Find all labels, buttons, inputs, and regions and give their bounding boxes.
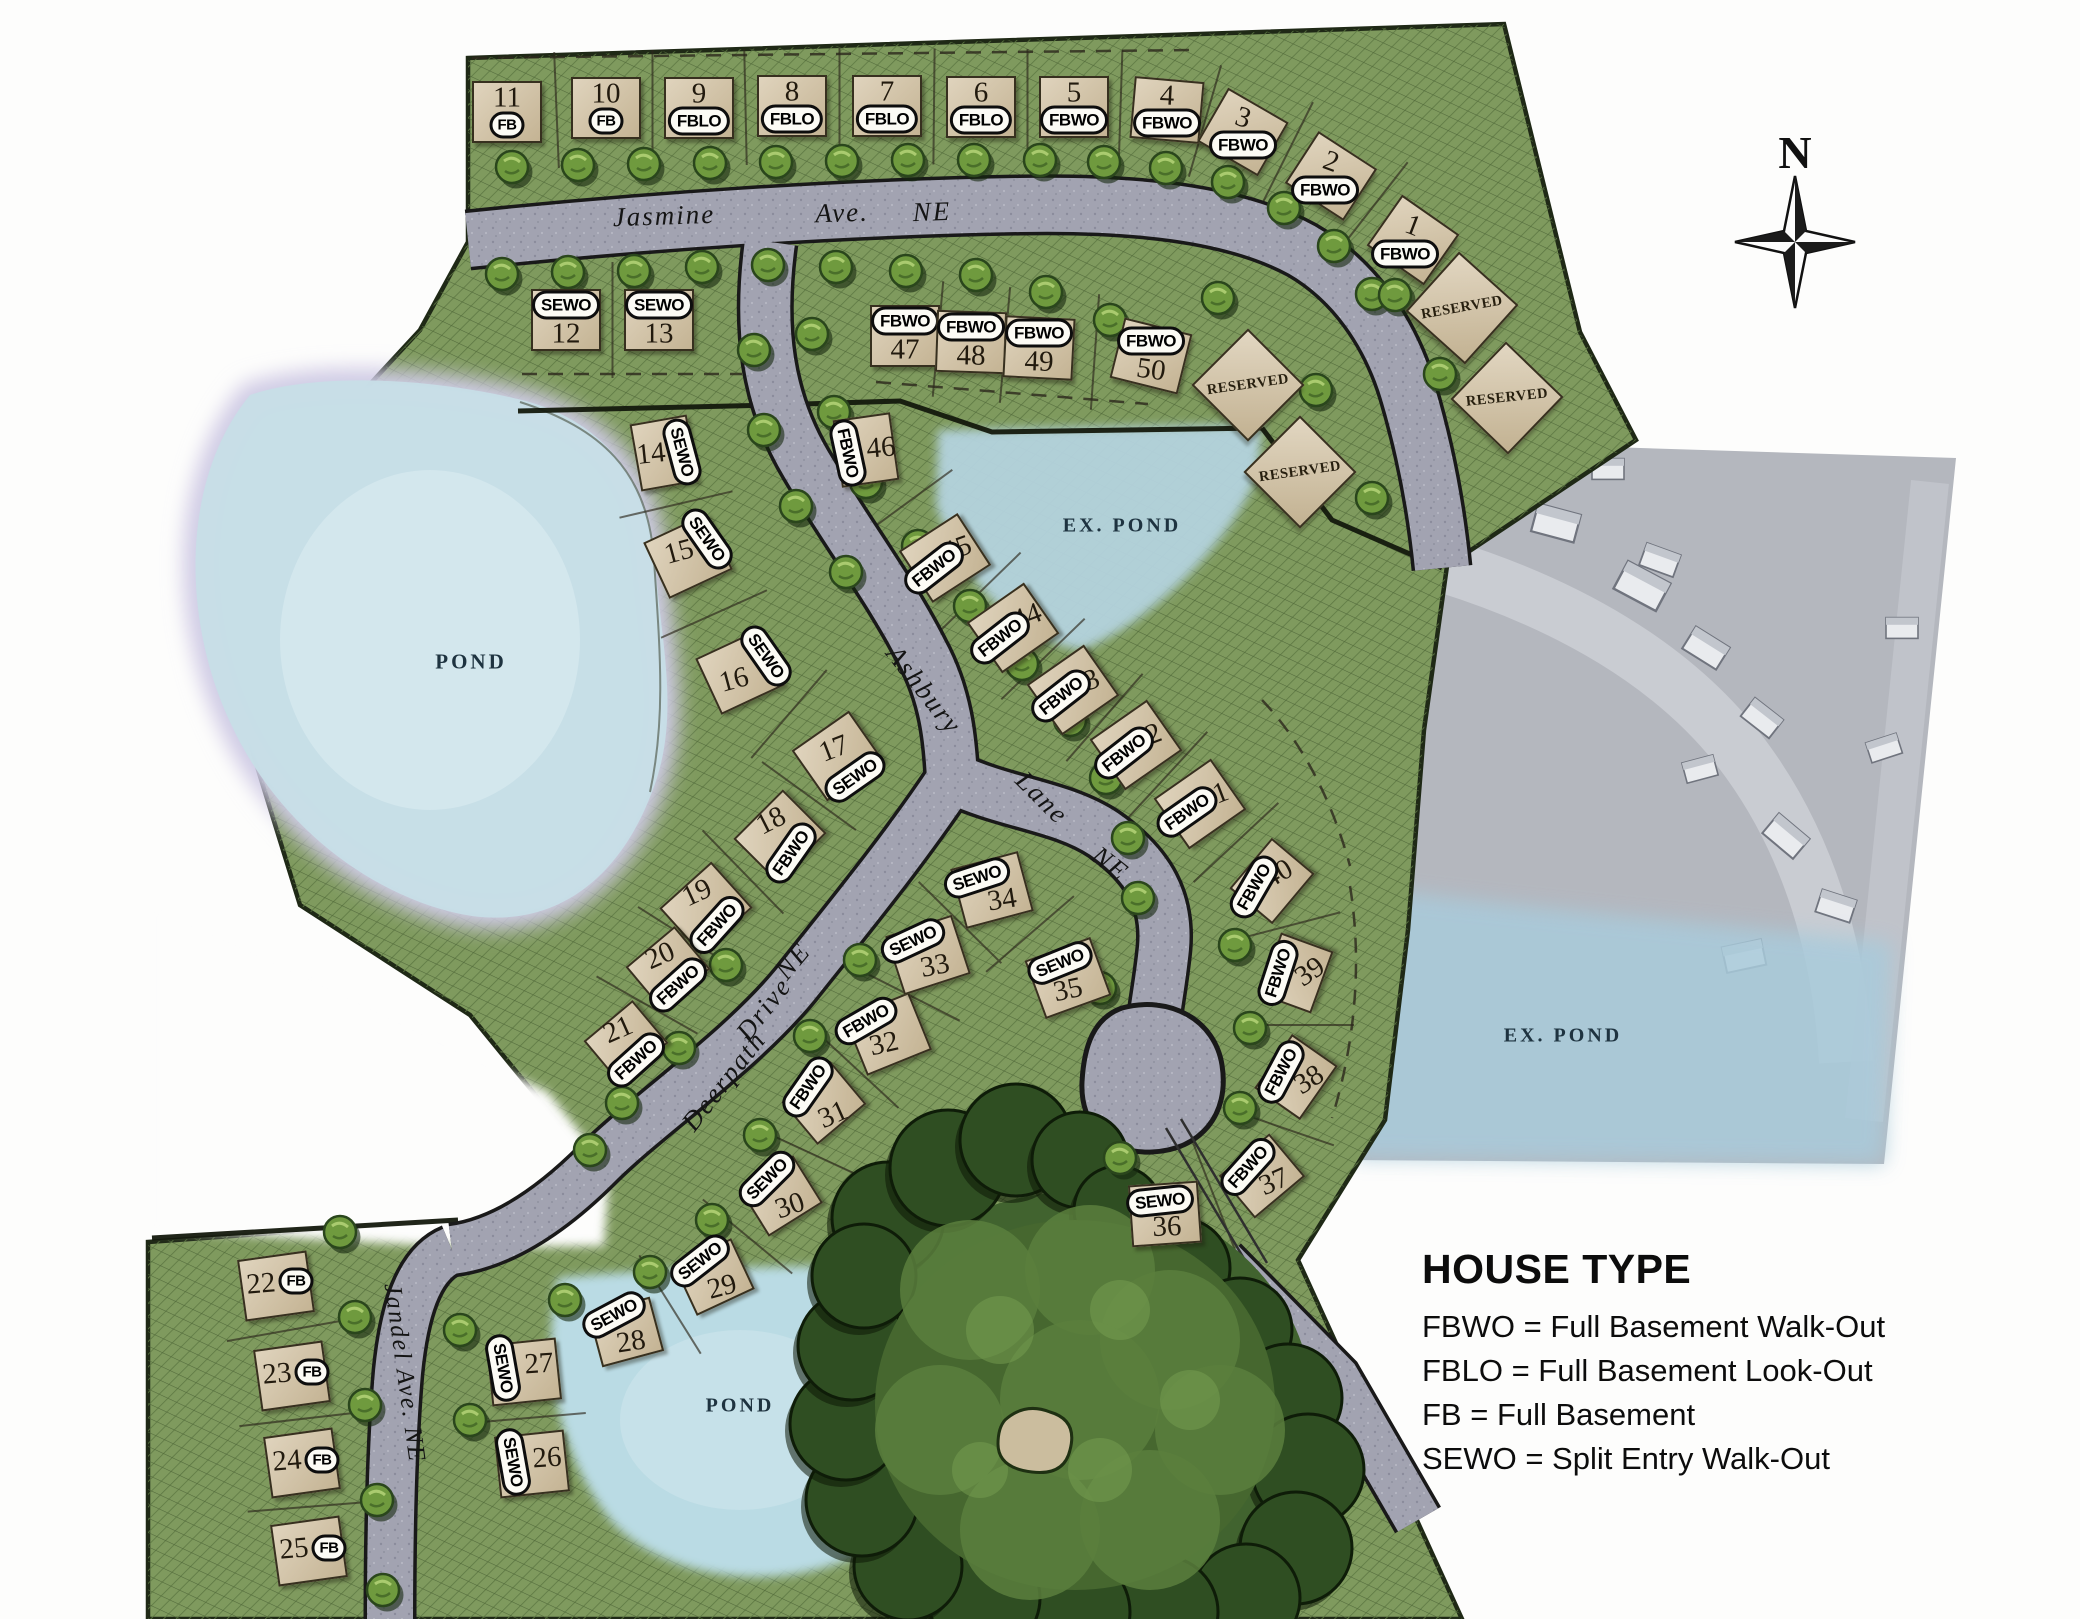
legend-entry: SEWO = Split Entry Walk-Out — [1422, 1437, 1885, 1481]
legend-entry: FBLO = Full Basement Look-Out — [1422, 1349, 1885, 1393]
compass-rose — [1735, 176, 1855, 308]
pond-left — [195, 380, 667, 917]
plat-map: N 11 FB 10 FB 9 FBLO 8 FBLO 7 FBLO 6 FBL… — [0, 0, 2080, 1619]
legend-entry: FBWO = Full Basement Walk-Out — [1422, 1305, 1885, 1349]
legend: HOUSE TYPE FBWO = Full Basement Walk-Out… — [1422, 1246, 1885, 1481]
legend-title: HOUSE TYPE — [1422, 1246, 1885, 1293]
north-label: N — [1778, 127, 1811, 178]
legend-entry: FB = Full Basement — [1422, 1393, 1885, 1437]
